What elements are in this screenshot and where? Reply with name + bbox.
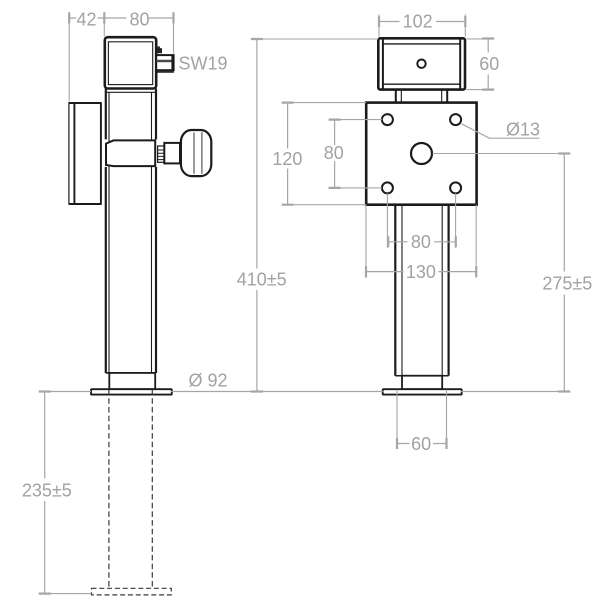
svg-text:80: 80 — [324, 143, 344, 163]
svg-text:60: 60 — [411, 434, 431, 454]
svg-text:235±5: 235±5 — [22, 480, 72, 500]
svg-text:60: 60 — [479, 54, 499, 74]
svg-text:Ø13: Ø13 — [506, 120, 540, 140]
svg-text:130: 130 — [406, 262, 436, 282]
svg-text:Ø 92: Ø 92 — [188, 371, 227, 391]
svg-text:275±5: 275±5 — [542, 274, 592, 294]
svg-text:120: 120 — [272, 149, 302, 169]
svg-text:42: 42 — [76, 10, 96, 30]
svg-text:410±5: 410±5 — [237, 269, 287, 289]
svg-text:80: 80 — [411, 232, 431, 252]
svg-text:102: 102 — [403, 12, 433, 32]
svg-text:80: 80 — [129, 10, 149, 30]
svg-text:SW19: SW19 — [178, 54, 227, 74]
